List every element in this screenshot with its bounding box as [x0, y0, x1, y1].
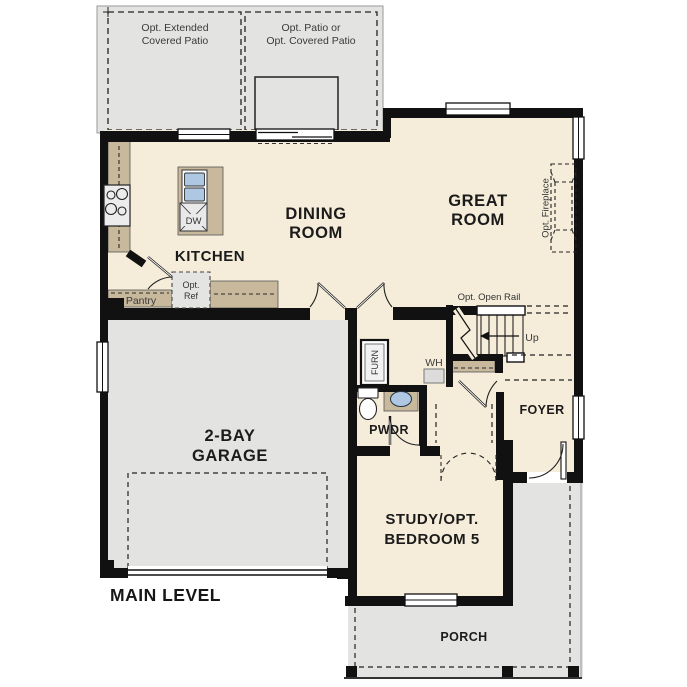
great-room-label-1: GREAT [448, 192, 508, 210]
optional-patio-label-2: Opt. Covered Patio [266, 35, 355, 47]
garage-door [128, 566, 327, 580]
window [97, 342, 108, 392]
dining-room-label-2: ROOM [289, 224, 343, 242]
garage-label-2: GARAGE [192, 447, 268, 465]
dining-room-label-1: DINING [285, 205, 346, 223]
pantry-label: Pantry [126, 295, 157, 307]
stair-rail-top [477, 306, 525, 315]
page-title: MAIN LEVEL [110, 585, 221, 605]
opt-ref-label-2: Ref [184, 291, 199, 301]
water-heater-label: WH [425, 357, 443, 369]
furnace-icon: FURN [361, 340, 388, 385]
optional-patio-label-1: Opt. Patio or [282, 22, 341, 34]
great-room-label-2: ROOM [451, 211, 505, 229]
kitchen-label: KITCHEN [175, 248, 245, 265]
dishwasher-label: DW [186, 216, 202, 227]
extended-patio-label-1: Opt. Extended [141, 22, 208, 34]
stair-rail-bottom [507, 353, 524, 362]
powder-room-label: PWDR [369, 423, 409, 437]
window [573, 396, 584, 439]
up-label: Up [525, 332, 539, 344]
extended-patio-label-2: Covered Patio [142, 35, 209, 47]
optional-fridge: Opt. Ref [172, 272, 210, 308]
opt-ref-label-1: Opt. [182, 280, 199, 290]
porch-post [502, 666, 513, 677]
toilet-icon [358, 388, 378, 420]
stove-icon [104, 185, 130, 226]
dishwasher-icon: DW [180, 203, 207, 231]
furnace-label: FURN [370, 350, 380, 375]
window [446, 103, 510, 115]
foyer-label: FOYER [519, 403, 564, 417]
porch-post [568, 666, 579, 677]
opt-fireplace-label: Opt. Fireplace [541, 178, 552, 238]
porch-label: PORCH [440, 630, 487, 644]
window [573, 117, 584, 159]
opt-open-rail-label: Opt. Open Rail [458, 292, 521, 303]
patio-slab [255, 77, 338, 130]
water-heater-icon [424, 369, 444, 383]
porch-post [346, 666, 357, 677]
floor-plan-drawing: DW Opt. Ref FURN [0, 0, 687, 687]
study-label-2: BEDROOM 5 [384, 531, 479, 548]
window [405, 594, 457, 606]
garage-label-1: 2-BAY [205, 427, 256, 445]
kitchen-sink-icon [182, 170, 207, 203]
study-label-1: STUDY/OPT. [385, 511, 478, 528]
floor-plan-page: DW Opt. Ref FURN [0, 0, 687, 687]
washbasin-icon [391, 392, 412, 407]
window [178, 129, 230, 140]
